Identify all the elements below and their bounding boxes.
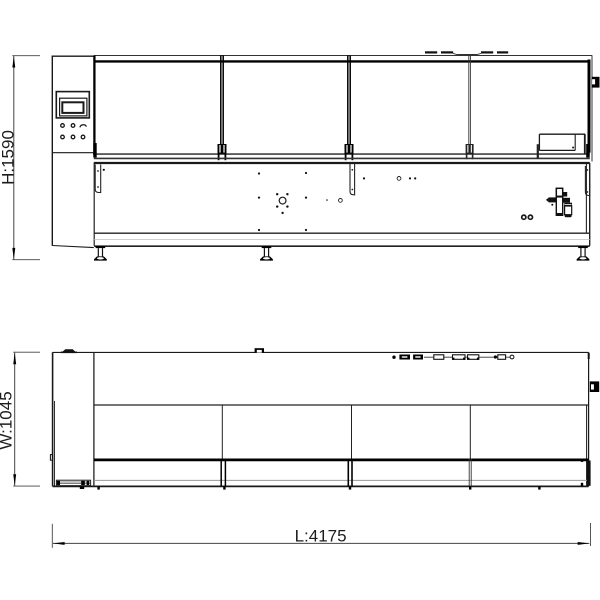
svg-text:H:1590: H:1590 <box>0 130 17 185</box>
svg-text:L:4175: L:4175 <box>295 527 347 546</box>
svg-text:W:1045: W:1045 <box>0 391 15 449</box>
